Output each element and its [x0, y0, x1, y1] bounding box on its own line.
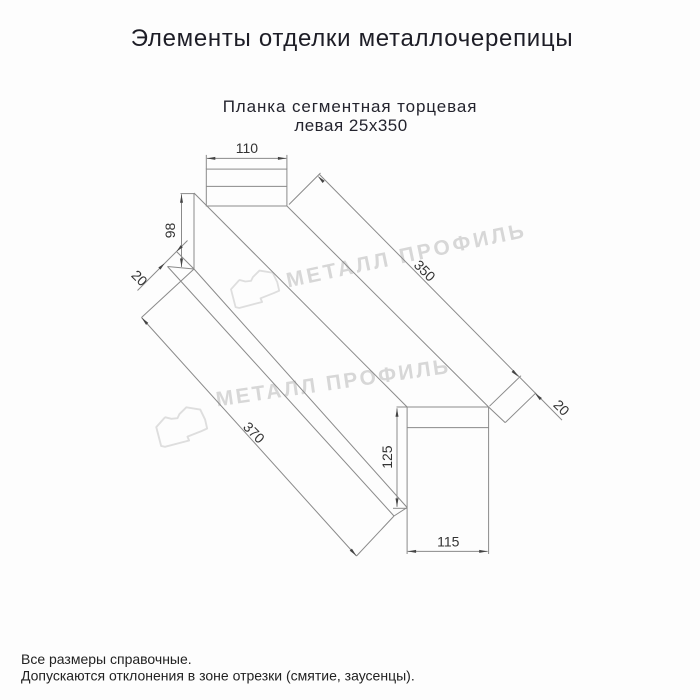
svg-text:20: 20 — [550, 396, 572, 418]
svg-text:Планка сегментная торцевая: Планка сегментная торцевая — [223, 97, 478, 116]
svg-text:115: 115 — [437, 534, 460, 550]
svg-text:Допускаются отклонения в зоне: Допускаются отклонения в зоне отрезки (с… — [21, 668, 415, 684]
svg-text:98: 98 — [162, 223, 178, 239]
svg-text:Все размеры справочные.: Все размеры справочные. — [21, 651, 192, 667]
svg-text:Элементы отделки металлочерепи: Элементы отделки металлочерепицы — [131, 25, 574, 52]
svg-text:МЕТАЛЛ ПРОФИЛЬ: МЕТАЛЛ ПРОФИЛЬ — [214, 355, 452, 412]
svg-text:20: 20 — [128, 267, 150, 289]
svg-text:125: 125 — [379, 445, 395, 469]
svg-text:370: 370 — [240, 419, 268, 447]
svg-text:МЕТАЛЛ ПРОФИЛЬ: МЕТАЛЛ ПРОФИЛЬ — [284, 219, 529, 292]
svg-text:левая 25х350: левая 25х350 — [294, 116, 407, 135]
svg-text:110: 110 — [236, 140, 259, 156]
